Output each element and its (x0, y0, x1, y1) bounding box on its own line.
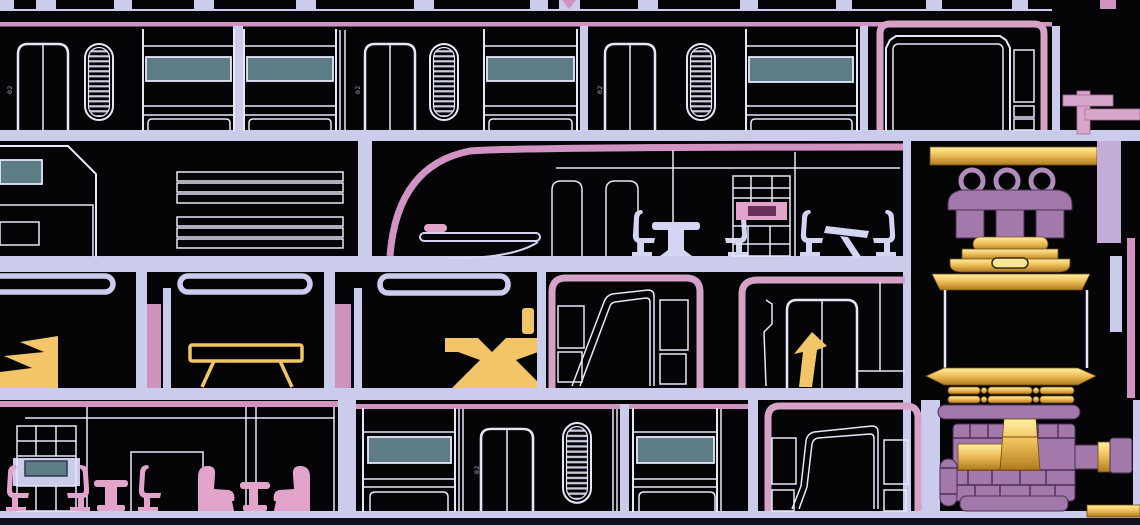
wall-divider (163, 288, 171, 388)
gold-funnel-duct (1000, 419, 1040, 470)
machinery-room-left-wall (921, 400, 940, 511)
bar-cushion (424, 224, 447, 232)
output-pipe (1075, 445, 1100, 469)
ceiling-pink-line (356, 404, 755, 409)
bottom-gold-conduit (1087, 505, 1140, 517)
access-ladder-vent (563, 423, 591, 503)
core-shaft-left-wall (903, 141, 911, 511)
upper-core-flange (932, 274, 1090, 290)
horizontal-pipe (1085, 109, 1140, 120)
injector-column (1036, 210, 1064, 238)
hull-marker-square (1100, 0, 1116, 9)
wall-screen (0, 160, 42, 184)
machinery-base (960, 496, 1068, 511)
support-beam (930, 147, 1097, 165)
pink-support-pillar (147, 304, 161, 388)
wall-divider (748, 400, 758, 511)
wall-screen (368, 437, 451, 463)
wall-screen (637, 437, 714, 463)
wall-divider (358, 141, 372, 256)
access-ladder-vent (430, 44, 458, 120)
wall-divider (324, 272, 335, 388)
core-pillar (1097, 141, 1121, 243)
wall-divider (136, 272, 147, 388)
cutaway-illustration: 02 02 02 (0, 0, 1140, 525)
wall-screen (25, 461, 67, 476)
access-ladder-vent (85, 44, 113, 120)
shelf-unit (733, 176, 790, 256)
deck-slab-3 (0, 388, 903, 400)
horizontal-pipe (1063, 95, 1113, 106)
core-pink-conduit (1127, 238, 1135, 398)
room-top-wall (180, 276, 310, 292)
wall-divider (580, 26, 588, 130)
room-top-wall (0, 276, 113, 292)
pink-support-pillar (335, 304, 351, 388)
wall-divider (620, 404, 629, 511)
door-plate-label: 02 (6, 85, 14, 94)
dilithium-slot (992, 258, 1028, 268)
wall-divider (354, 288, 362, 388)
door-plate-label: 02 (354, 85, 362, 94)
deck-slab-1 (0, 130, 1140, 141)
room-top-wall (380, 276, 508, 293)
drawer-recess (748, 206, 776, 216)
access-ladder-vent (687, 44, 715, 120)
injector-manifold (948, 190, 1072, 210)
starship-cutaway-svg: 02 02 02 (0, 0, 1140, 525)
wall-screen (487, 57, 574, 81)
pipe-gold-band (1098, 442, 1110, 472)
wall-screen (146, 57, 231, 81)
gold-wall-fixture (522, 308, 534, 334)
pipe-end-cap (1110, 438, 1132, 473)
wall-divider (1052, 26, 1060, 130)
core-right-wall-segment (1110, 256, 1122, 332)
wall-screen (749, 57, 853, 82)
coolant-capsule (940, 459, 957, 506)
wall-screen (247, 57, 333, 81)
lower-core-flange (926, 368, 1096, 385)
door-plate-label: 02 (596, 85, 604, 94)
ceiling-pink-line (0, 401, 338, 407)
wall-divider (537, 272, 546, 388)
machinery-top-slab (938, 405, 1080, 419)
hull-bottom-edge (0, 518, 1140, 525)
machinery-room-right-wall (1133, 400, 1140, 511)
injector-column (996, 210, 1024, 238)
wall-divider (338, 400, 356, 511)
deck-slab-bottom (0, 511, 1140, 518)
wall-divider (860, 26, 868, 130)
injector-column (956, 210, 984, 238)
